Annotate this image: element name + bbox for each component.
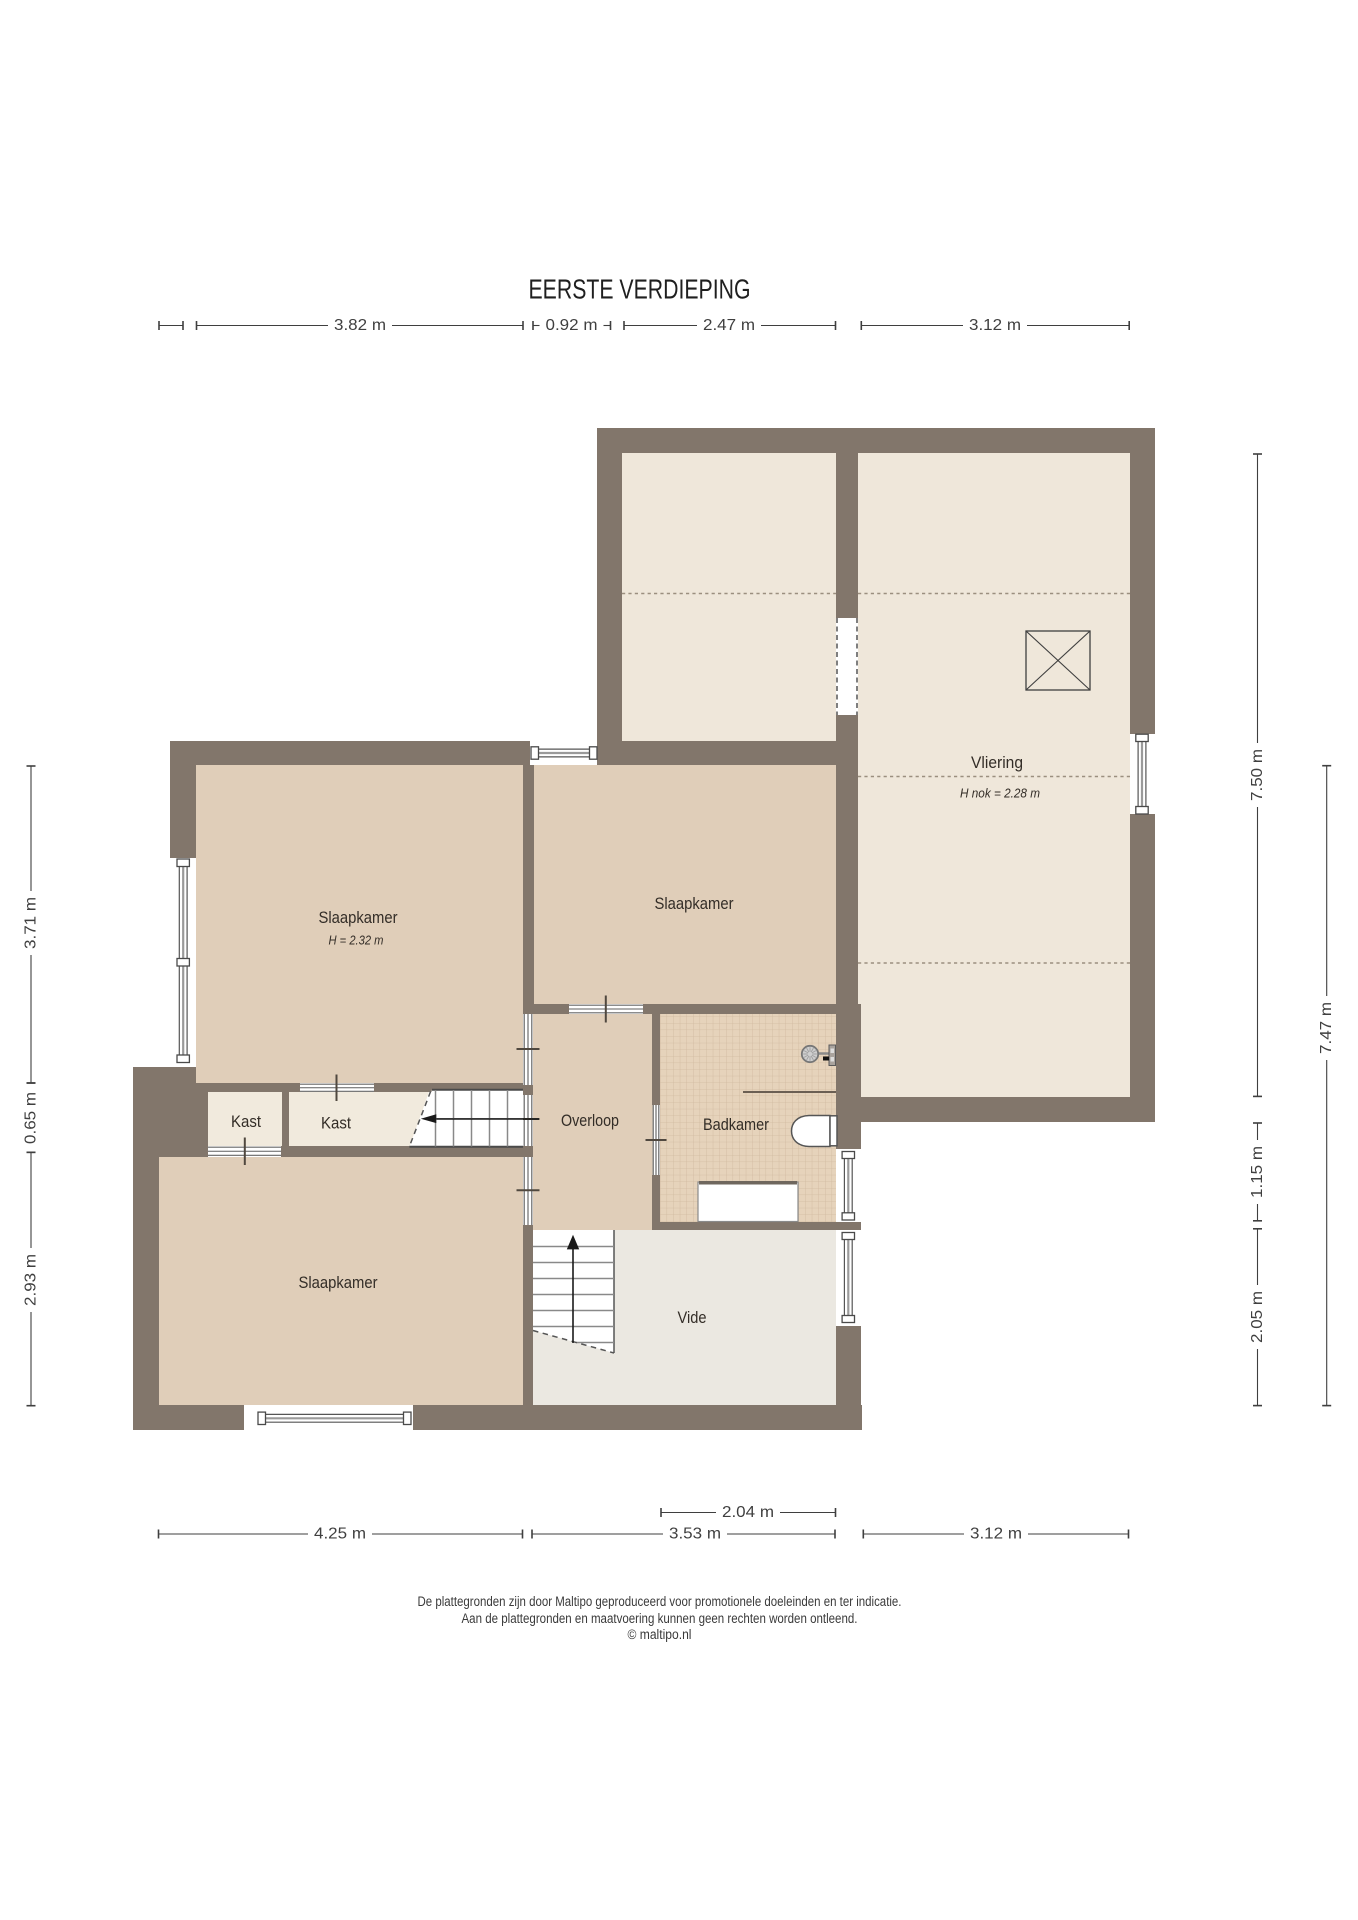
svg-text:4.25 m: 4.25 m [314,1526,366,1543]
svg-text:Overloop: Overloop [561,1112,619,1130]
svg-text:3.71 m: 3.71 m [23,897,40,949]
svg-text:3.12 m: 3.12 m [970,1526,1022,1543]
svg-text:H = 2.32 m: H = 2.32 m [329,933,384,948]
svg-text:Slaapkamer: Slaapkamer [299,1274,378,1292]
svg-text:3.82 m: 3.82 m [334,317,386,334]
svg-text:1.15 m: 1.15 m [1249,1146,1266,1198]
svg-text:2.05 m: 2.05 m [1249,1291,1266,1343]
svg-text:© maltipo.nl: © maltipo.nl [628,1627,692,1642]
svg-text:Kast: Kast [321,1115,351,1133]
svg-text:2.93 m: 2.93 m [23,1254,40,1306]
svg-text:Vide: Vide [678,1309,707,1327]
svg-text:0.92 m: 0.92 m [546,317,598,334]
svg-text:Vliering: Vliering [971,754,1023,772]
svg-text:Kast: Kast [231,1113,261,1131]
svg-text:0.65 m: 0.65 m [23,1092,40,1144]
svg-text:7.50 m: 7.50 m [1249,749,1266,801]
svg-text:Slaapkamer: Slaapkamer [655,895,734,913]
svg-text:H nok = 2.28 m: H nok = 2.28 m [960,786,1040,801]
svg-text:3.53 m: 3.53 m [669,1526,721,1543]
svg-text:De plattegronden zijn door Mal: De plattegronden zijn door Maltipo gepro… [418,1594,902,1609]
svg-text:Aan de plattegronden en maatvo: Aan de plattegronden en maatvoering kunn… [462,1611,858,1626]
svg-text:7.47 m: 7.47 m [1318,1002,1335,1054]
svg-text:2.47 m: 2.47 m [703,317,755,334]
svg-text:Slaapkamer: Slaapkamer [319,909,398,927]
svg-text:3.12 m: 3.12 m [969,317,1021,334]
svg-text:EERSTE VERDIEPING: EERSTE VERDIEPING [529,274,751,305]
svg-text:Badkamer: Badkamer [703,1116,769,1134]
svg-text:2.04 m: 2.04 m [722,1504,774,1521]
